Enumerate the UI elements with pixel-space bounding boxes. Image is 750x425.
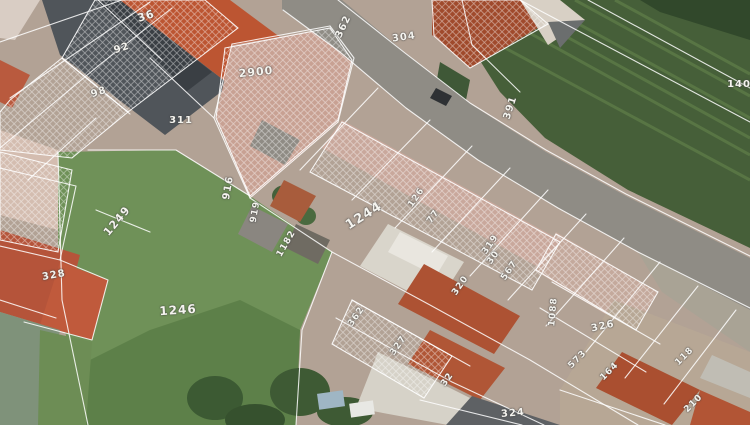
parcel-boundary-line <box>96 210 150 232</box>
parcel-boundary-line <box>420 400 522 425</box>
parcel-boundary-line <box>520 0 750 122</box>
hatched-parcels <box>0 0 658 398</box>
hatched-parcel <box>432 0 548 68</box>
cadastral-overlay <box>0 0 750 425</box>
parcel-boundary-line <box>296 252 332 425</box>
parcel-boundary-line <box>0 300 56 318</box>
cadastral-map[interactable]: 3692983112900362304391140916919118212441… <box>0 0 750 425</box>
hatched-parcel <box>0 152 72 252</box>
parcel-boundary-line <box>664 310 736 404</box>
parcel-boundary-line <box>24 260 108 340</box>
parcel-boundary-line <box>588 0 750 88</box>
parcel-boundary-line <box>560 390 665 425</box>
parcel-boundary-line <box>88 150 250 196</box>
hatched-parcel <box>310 122 560 290</box>
